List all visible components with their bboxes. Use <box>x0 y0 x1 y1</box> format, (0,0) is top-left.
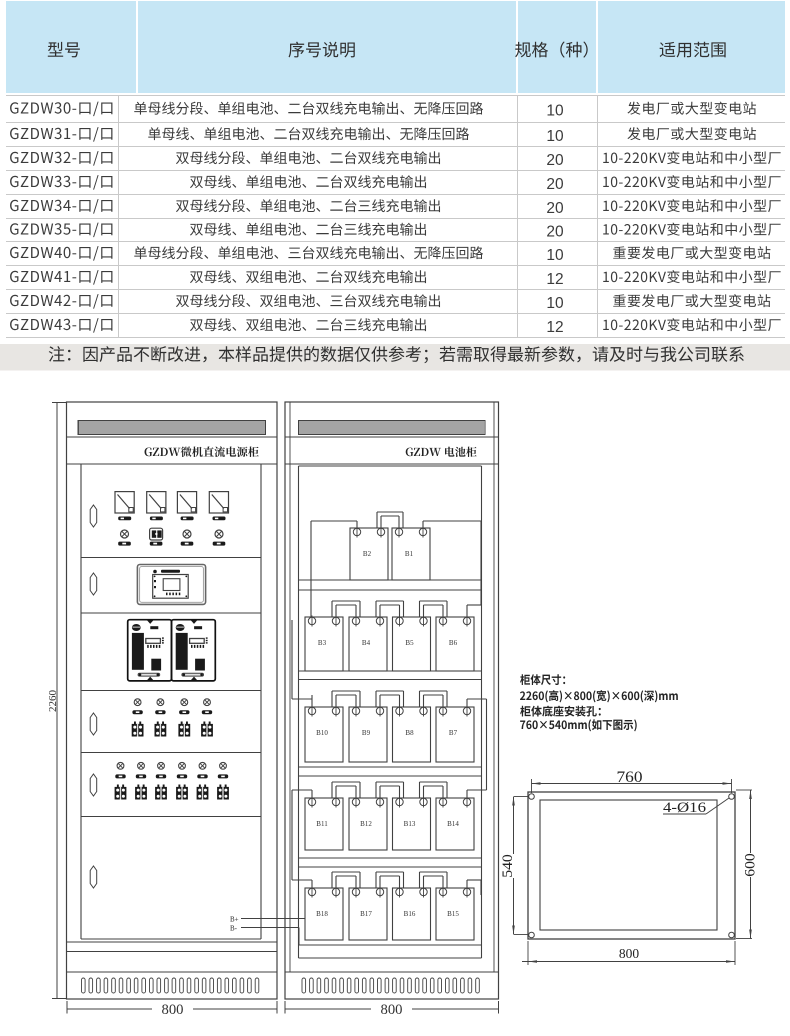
svg-text:B18: B18 <box>316 910 328 918</box>
svg-text:10: 10 <box>546 128 564 145</box>
svg-text:800: 800 <box>381 1002 403 1018</box>
svg-text:B1: B1 <box>405 550 414 558</box>
svg-text:12: 12 <box>546 271 563 288</box>
svg-text:B2: B2 <box>363 550 372 558</box>
svg-text:B15: B15 <box>447 910 459 918</box>
svg-text:B+: B+ <box>230 916 239 924</box>
svg-text:B4: B4 <box>362 639 371 647</box>
svg-text:B5: B5 <box>405 639 414 647</box>
svg-text:20: 20 <box>546 224 564 241</box>
svg-text:B3: B3 <box>318 639 327 647</box>
svg-text:20: 20 <box>546 152 564 169</box>
svg-text:B13: B13 <box>404 820 416 828</box>
svg-text:2260: 2260 <box>47 690 59 713</box>
svg-text:B14: B14 <box>447 820 459 828</box>
svg-text:800: 800 <box>162 1002 184 1018</box>
svg-text:B10: B10 <box>316 729 328 737</box>
svg-text:B-: B- <box>230 925 238 933</box>
svg-text:10: 10 <box>546 247 564 264</box>
svg-text:B7: B7 <box>449 729 458 737</box>
svg-text:B11: B11 <box>316 820 328 828</box>
svg-text:540: 540 <box>500 854 516 878</box>
svg-text:20: 20 <box>546 176 564 193</box>
svg-text:B9: B9 <box>362 729 371 737</box>
svg-text:20: 20 <box>546 200 564 217</box>
svg-text:B6: B6 <box>449 639 458 647</box>
svg-text:10: 10 <box>546 103 564 120</box>
svg-text:12: 12 <box>546 319 563 336</box>
svg-text:B8: B8 <box>405 729 414 737</box>
svg-text:760: 760 <box>617 769 643 786</box>
svg-text:800: 800 <box>619 946 640 961</box>
svg-text:B16: B16 <box>404 910 416 918</box>
svg-text:B12: B12 <box>360 820 372 828</box>
svg-text:10: 10 <box>546 295 564 312</box>
svg-text:600: 600 <box>743 853 759 877</box>
svg-text:B17: B17 <box>360 910 372 918</box>
